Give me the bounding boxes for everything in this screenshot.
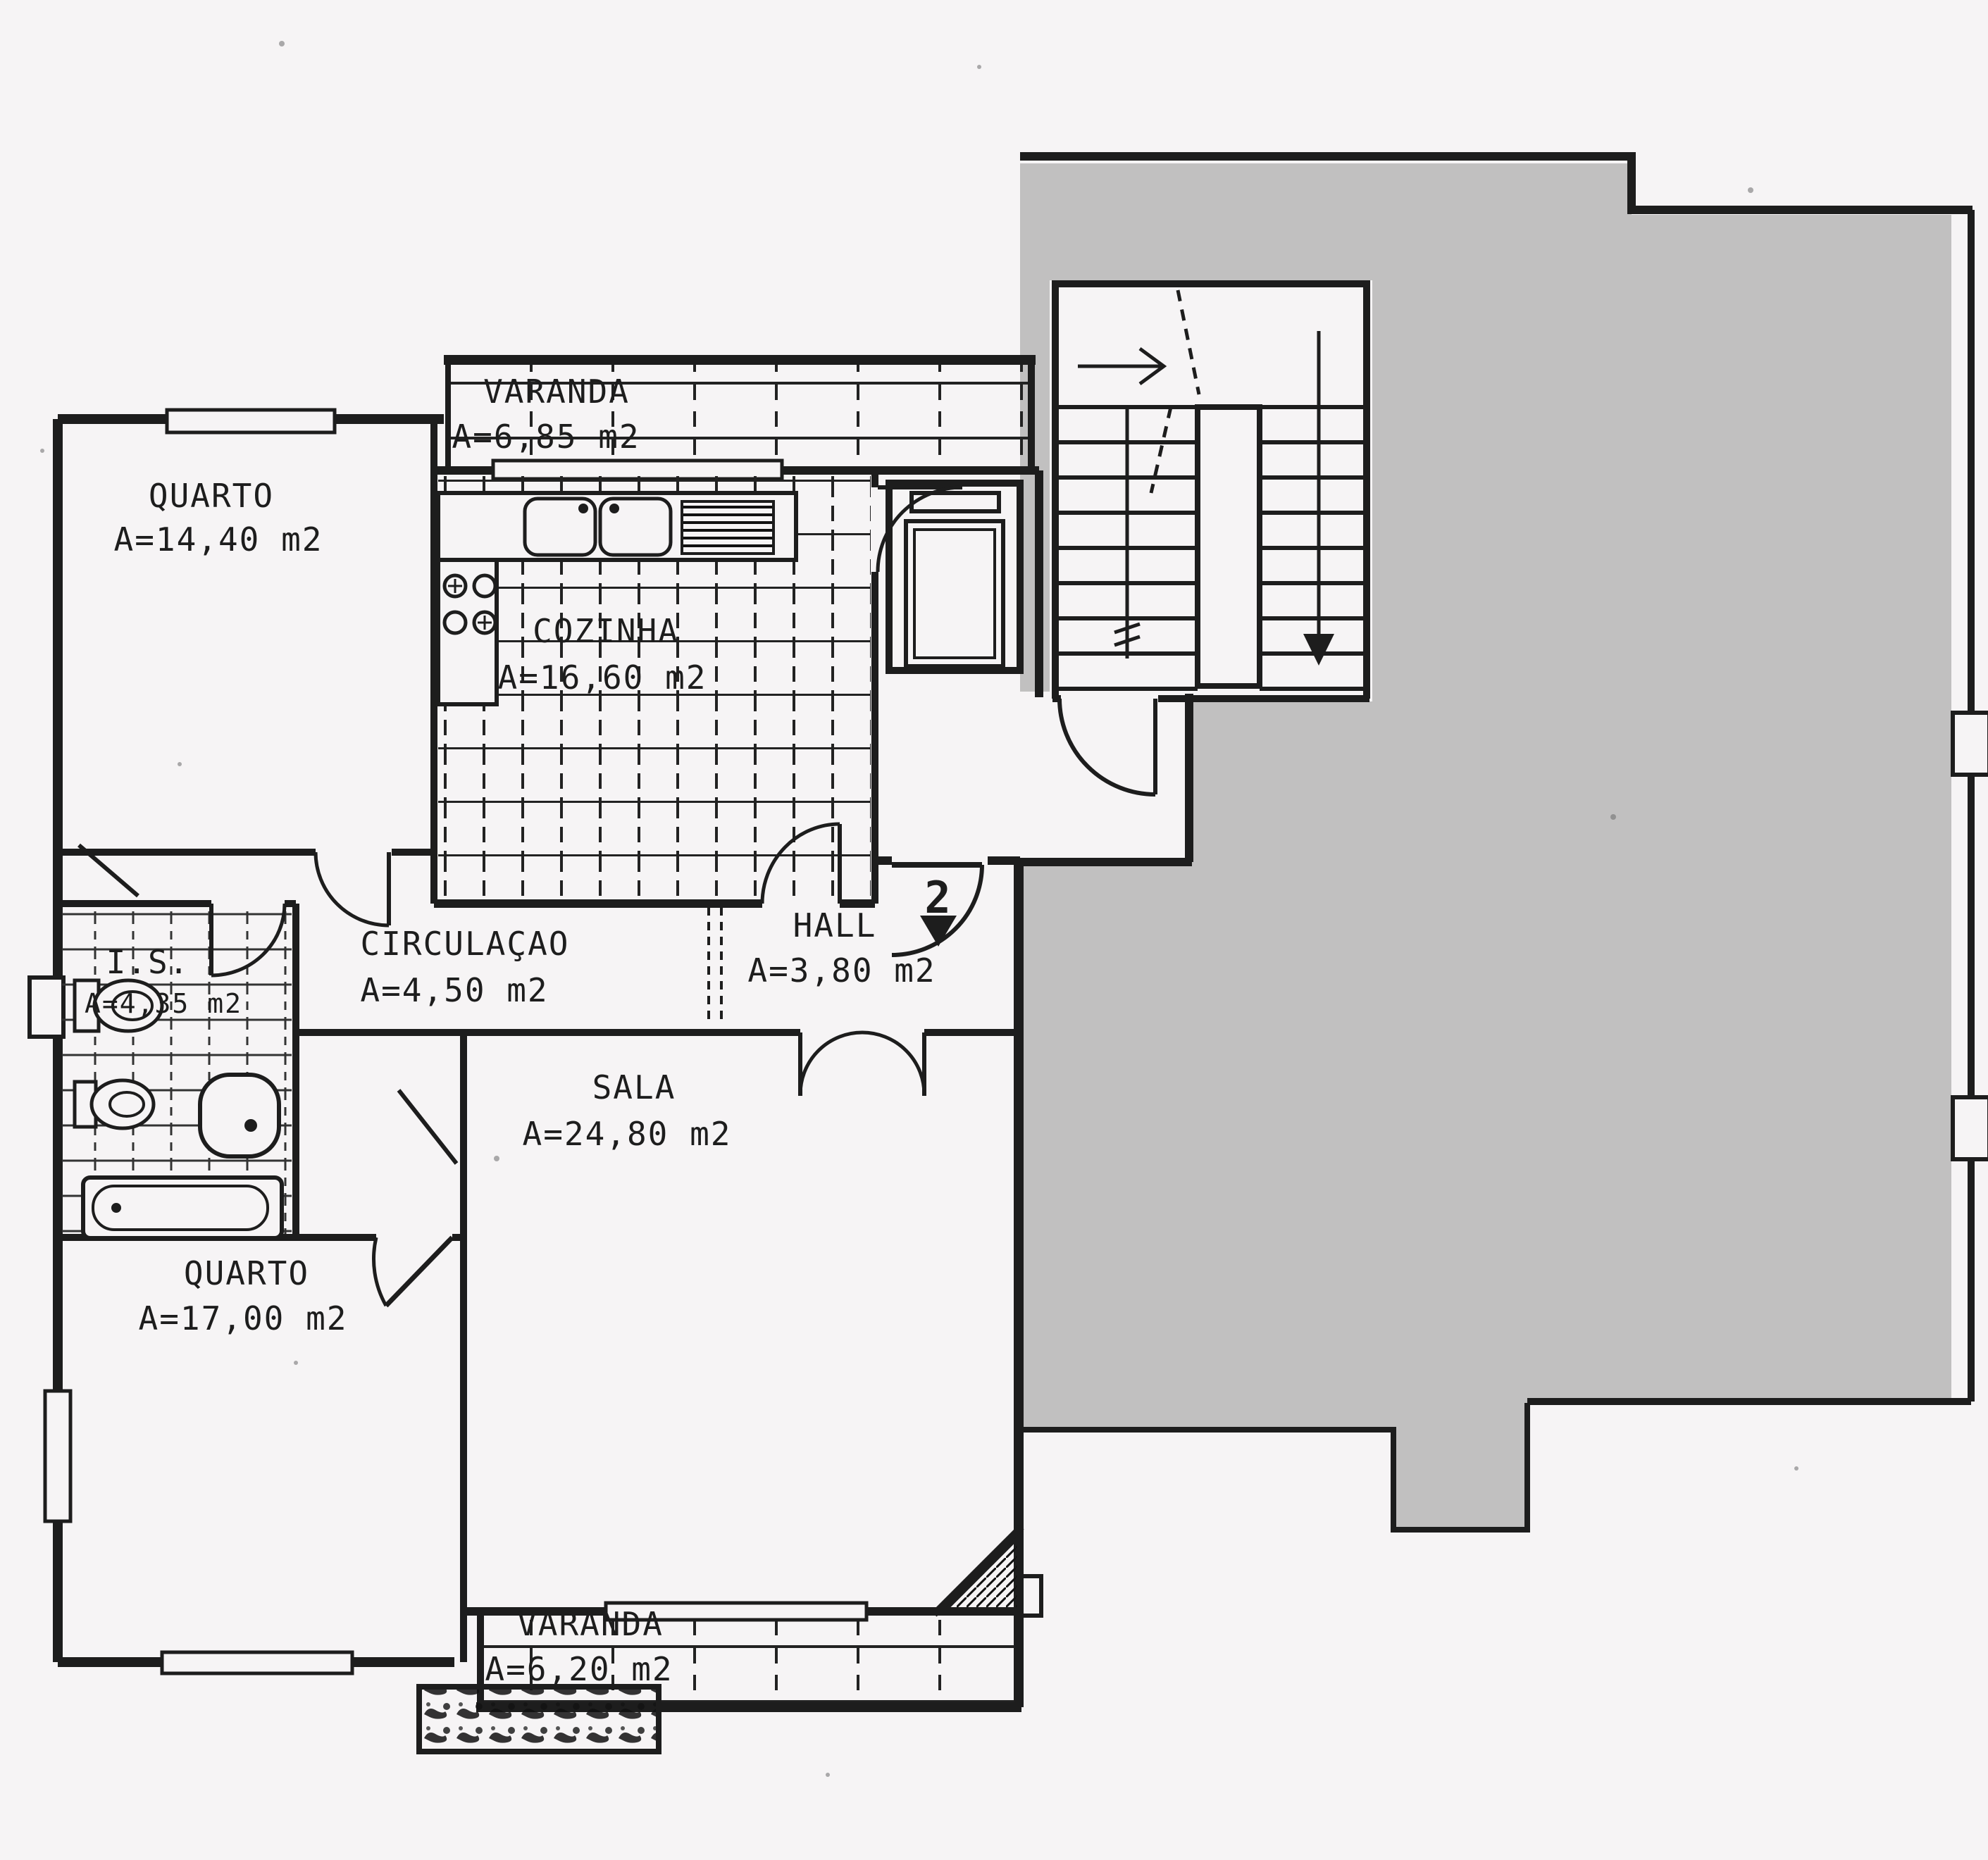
label-is-name: I.S. — [106, 943, 190, 981]
label-varanda-top-name: VARANDA — [483, 373, 630, 411]
label-cozinha-area: A=16,60 m2 — [498, 659, 707, 697]
kitchen-drainer — [682, 501, 774, 554]
label-quarto1-name: QUARTO — [149, 477, 274, 515]
window-quarto2-bottom — [162, 1652, 352, 1673]
label-circulacao-name: CIRCULAÇAO — [361, 925, 570, 963]
scanned-floor-plan-page: QUARTO A=14,40 m2 VARANDA A=6,85 m2 COZI… — [0, 0, 1988, 1860]
label-hall-area: A=3,80 m2 — [747, 951, 936, 990]
label-quarto2-area: A=17,00 m2 — [139, 1299, 348, 1337]
planter-box — [419, 1687, 659, 1752]
bidet-icon — [75, 1080, 154, 1128]
label-sala-name: SALA — [592, 1068, 676, 1106]
window-quarto2-left — [45, 1391, 70, 1521]
label-quarto1-area: A=14,40 m2 — [114, 520, 323, 558]
label-varanda-bottom-area: A=6,20 m2 — [485, 1650, 673, 1688]
label-quarto2-name: QUARTO — [184, 1254, 309, 1292]
floor-plan-drawing: QUARTO A=14,40 m2 VARANDA A=6,85 m2 COZI… — [0, 0, 1988, 1860]
window-quarto1 — [167, 410, 335, 432]
label-is-area: A=4,35 m2 — [85, 988, 242, 1019]
label-varanda-bottom-name: VARANDA — [517, 1605, 664, 1643]
right-facade-window — [1953, 1097, 1988, 1159]
label-hall-name: HALL — [793, 906, 877, 944]
window-is — [30, 978, 63, 1037]
label-circulacao-area: A=4,50 m2 — [360, 971, 548, 1009]
label-varanda-top-area: A=6,85 m2 — [452, 418, 640, 456]
label-cozinha-name: COZINHA — [533, 612, 679, 650]
bathtub-icon — [83, 1178, 282, 1238]
right-facade-window — [1953, 713, 1988, 775]
label-sala-area: A=24,80 m2 — [523, 1115, 732, 1153]
washbasin-icon — [200, 1075, 279, 1156]
label-unit-number: 2 — [924, 872, 952, 923]
